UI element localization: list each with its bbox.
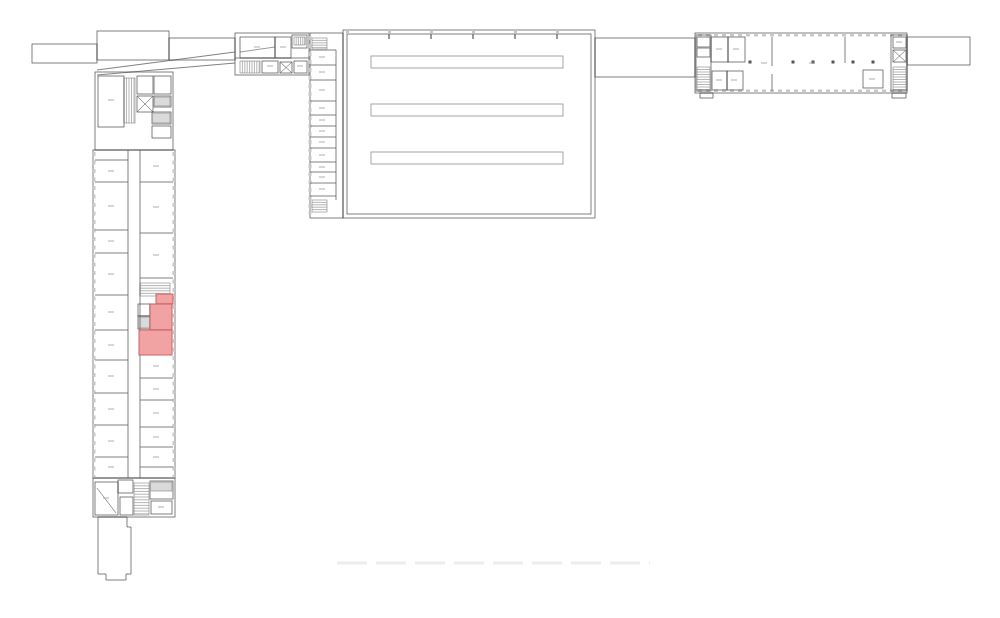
layer-east-wing	[695, 33, 907, 98]
wc-hatch	[153, 113, 170, 123]
room	[137, 76, 153, 94]
layer-northwest-link	[97, 31, 235, 75]
east-link-corridor	[595, 38, 695, 77]
layer-central-block	[235, 33, 309, 75]
room	[120, 497, 133, 515]
stair-hatch-frame	[312, 200, 327, 212]
wc-hatch	[294, 37, 305, 45]
column	[749, 61, 752, 64]
room	[893, 37, 906, 48]
wc-hatch-frame	[153, 113, 170, 123]
stair-hatch-frame	[124, 78, 135, 123]
central-block-outline	[235, 33, 309, 75]
hall-inner-wall	[347, 34, 591, 214]
hall-skylight	[371, 56, 563, 68]
west-corridor-stub	[32, 44, 97, 63]
room	[152, 126, 171, 138]
layer-highlight	[139, 294, 173, 355]
east-stair-core-east	[891, 35, 907, 91]
elevator	[893, 50, 906, 62]
stair-hatch-frame	[134, 483, 149, 515]
room	[275, 37, 291, 58]
stair-hatch	[697, 67, 710, 90]
link-roof-lower	[169, 38, 235, 60]
floor-plan-page	[0, 0, 1000, 618]
room	[151, 501, 172, 514]
room	[154, 96, 171, 107]
room	[711, 37, 728, 62]
link-roof-upper	[97, 31, 169, 60]
stair-hatch	[312, 200, 327, 212]
room	[150, 481, 173, 499]
link-bridge-edge-lower	[97, 63, 235, 75]
wc-hatch-frame	[139, 317, 149, 328]
entrance-porch	[892, 93, 906, 98]
room	[154, 76, 171, 94]
stair-hatch	[134, 483, 149, 515]
stair-hatch	[893, 67, 906, 90]
room	[98, 76, 124, 127]
column	[792, 61, 795, 64]
layer-east-link	[595, 38, 695, 77]
entrance-porch	[700, 93, 713, 98]
column	[872, 61, 875, 64]
column	[832, 61, 835, 64]
room-curved-wall	[240, 47, 275, 52]
stair-hatch	[124, 78, 135, 123]
link-bridge-edge-upper	[97, 52, 235, 70]
room	[262, 61, 278, 73]
stair-hatch-frame	[893, 67, 906, 90]
east-stair-core-west	[696, 35, 711, 91]
layer-great-hall	[343, 30, 595, 218]
wc-hatch	[151, 482, 172, 491]
column	[852, 61, 855, 64]
highlighted-room-north[interactable]	[156, 294, 173, 304]
door-swing	[97, 488, 116, 513]
hall-skylight	[371, 104, 563, 116]
hall-outer-wall	[343, 30, 595, 218]
south-entrance-stair	[98, 517, 131, 580]
room	[697, 48, 710, 57]
elevator	[280, 62, 292, 73]
wc-hatch	[155, 97, 170, 106]
highlighted-room-south[interactable]	[139, 330, 172, 355]
room	[727, 71, 743, 90]
stair-hatch	[240, 61, 260, 73]
central-strip-outline	[310, 33, 343, 218]
east-corridor-stub	[907, 37, 970, 65]
stair-hatch-frame	[697, 67, 710, 90]
room	[712, 71, 727, 90]
floor-plan-svg	[0, 0, 1000, 618]
wc-hatch	[139, 317, 149, 328]
room	[728, 37, 745, 62]
wc-hatch-frame	[294, 37, 305, 45]
room	[95, 482, 118, 515]
room	[118, 480, 133, 493]
highlighted-room-middle[interactable]	[150, 304, 172, 330]
room	[294, 61, 307, 73]
hall-skylight	[371, 152, 563, 164]
stair-hatch	[312, 38, 327, 49]
layer-central-strip	[310, 33, 343, 218]
elevator	[137, 96, 153, 112]
room	[697, 37, 710, 47]
